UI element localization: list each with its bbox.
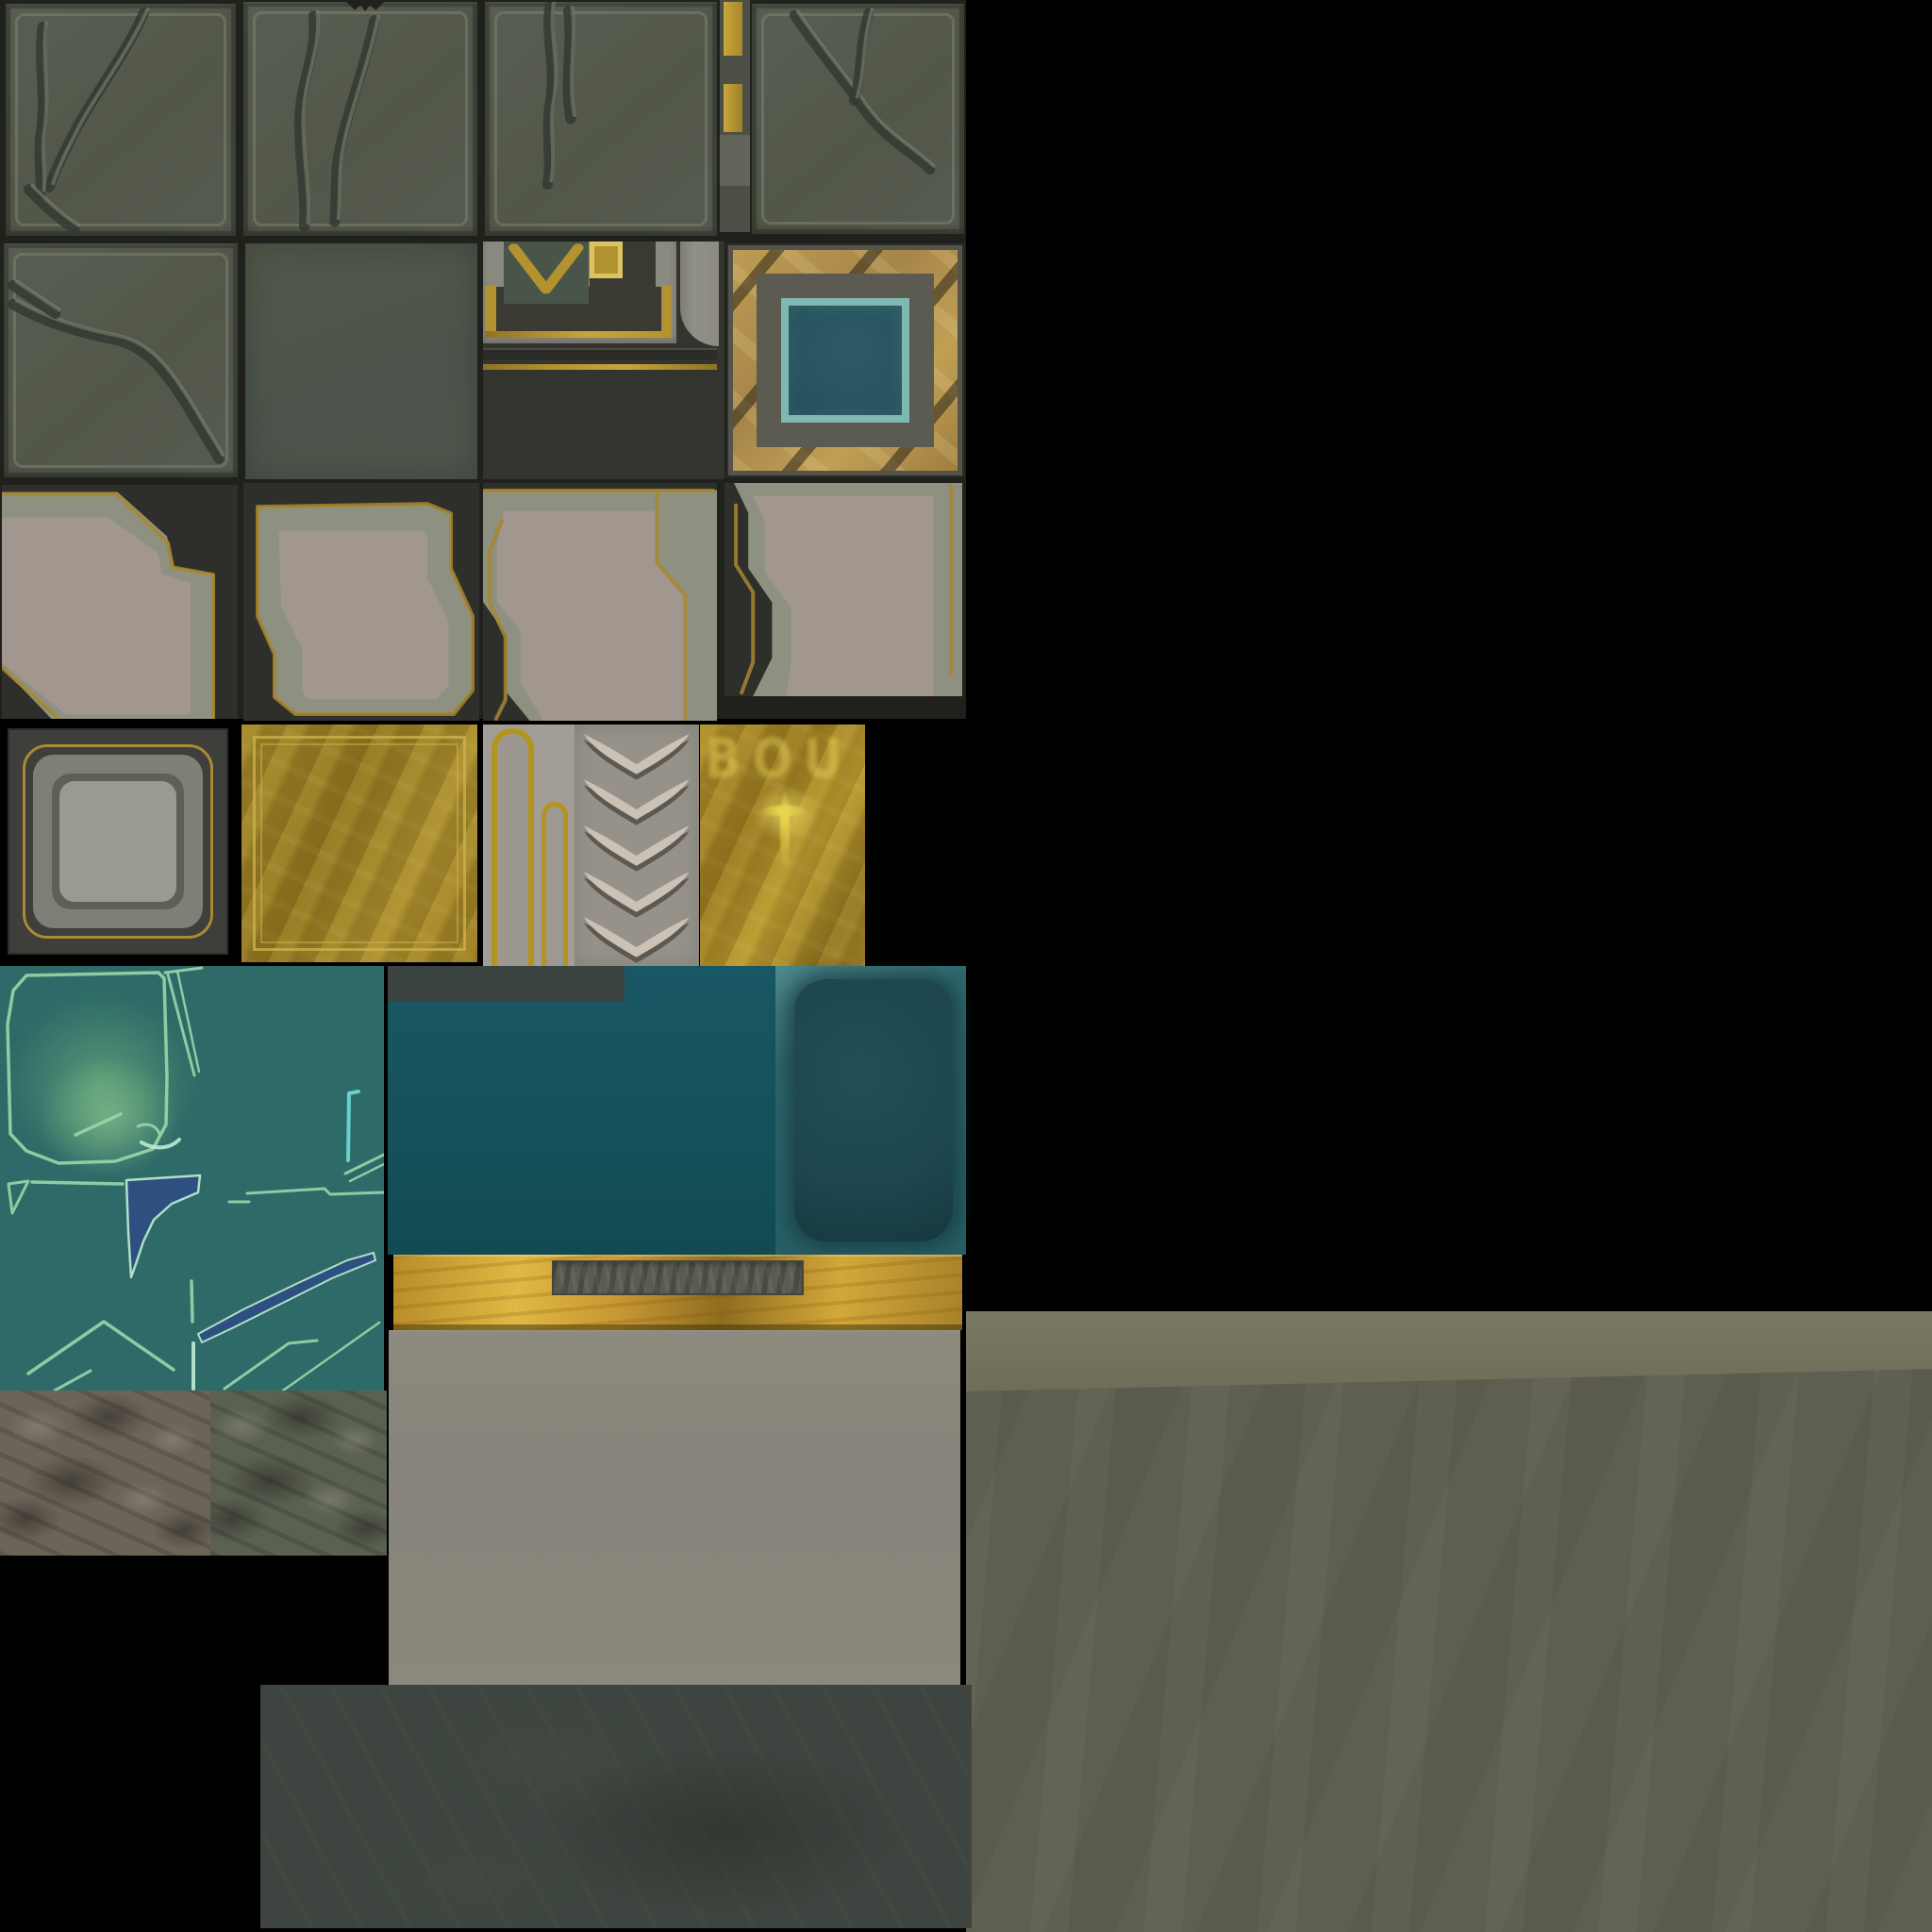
chevron-icon bbox=[579, 824, 693, 872]
gold-outline-pillar bbox=[541, 802, 568, 966]
light-gray-panel bbox=[389, 1330, 960, 1685]
chevron-icon bbox=[579, 732, 693, 780]
teal-flat-panel bbox=[388, 966, 775, 1255]
chevron-stack-decal bbox=[575, 724, 699, 966]
rock-texture-a bbox=[0, 1391, 210, 1556]
dark-slate-panel bbox=[260, 1685, 972, 1928]
mauve-panel-corner-2 bbox=[483, 483, 717, 721]
gold-channel-bottom bbox=[485, 331, 672, 339]
crack-lines bbox=[485, 2, 717, 236]
chevron-icon bbox=[579, 870, 693, 918]
v-chevron-icon bbox=[504, 241, 589, 304]
mauve-panel-ring bbox=[243, 483, 479, 721]
gold-square bbox=[590, 241, 624, 278]
gold-segment bbox=[724, 84, 742, 133]
gold-trim-lines bbox=[243, 483, 479, 721]
gold-line bbox=[483, 364, 717, 370]
chevron-icon bbox=[579, 915, 693, 963]
mauve-panel-corner-3 bbox=[724, 483, 962, 696]
gold-outline-pillars-decal bbox=[483, 724, 575, 966]
gold-trim-lines bbox=[483, 483, 717, 721]
gold-bou-tile: BOU bbox=[700, 724, 865, 966]
gold-bar-with-slot bbox=[393, 1255, 962, 1330]
dark-slot bbox=[552, 1260, 804, 1295]
gray-side-strip bbox=[680, 241, 719, 346]
gray-header-bar bbox=[388, 966, 625, 1002]
green-window bbox=[504, 241, 589, 304]
inset-border bbox=[260, 743, 458, 943]
crack-lines bbox=[4, 243, 238, 477]
rock-texture-b bbox=[210, 1391, 387, 1556]
teal-crack-map-panel bbox=[0, 966, 384, 1391]
slate-tile-3 bbox=[485, 2, 717, 236]
gold-segment bbox=[724, 2, 742, 56]
texture-atlas: BOU bbox=[0, 0, 1932, 1932]
light-center bbox=[59, 781, 176, 901]
gold-outline-pillar bbox=[491, 728, 535, 966]
gold-channel-right bbox=[662, 286, 672, 337]
mauve-panel-corner-1 bbox=[2, 485, 238, 719]
gold-trim-lines bbox=[2, 485, 238, 719]
gold-chevron-ornament-tile bbox=[483, 241, 724, 479]
soft-inner-rect bbox=[794, 979, 953, 1241]
crack-lines bbox=[243, 2, 477, 236]
gold-trim-lines bbox=[724, 483, 962, 696]
gold-frame-teal-tile bbox=[726, 243, 964, 477]
slate-tile-1 bbox=[6, 4, 236, 236]
slate-tile-2 bbox=[243, 2, 477, 236]
rounded-square-frame-tile bbox=[8, 728, 228, 955]
crack-lines bbox=[752, 4, 964, 234]
slate-tile-4 bbox=[752, 4, 964, 234]
slate-tile-plain bbox=[245, 243, 477, 479]
bou-faint-label: BOU bbox=[705, 727, 853, 791]
gray-chunk bbox=[720, 135, 750, 186]
gold-channel-left bbox=[485, 286, 496, 337]
dark-bar bbox=[483, 348, 717, 359]
teal-core bbox=[781, 298, 909, 423]
chevron-icon bbox=[579, 777, 693, 825]
crack-lines bbox=[6, 4, 236, 236]
slate-tile-cracked bbox=[4, 243, 238, 477]
map-outline-lines bbox=[0, 966, 384, 1391]
olive-floor-area bbox=[966, 1368, 1932, 1932]
teal-screen-block bbox=[775, 966, 966, 1255]
gold-plate-tile bbox=[241, 724, 477, 962]
gold-conduit-strip bbox=[720, 0, 750, 232]
star-beam-horizontal bbox=[759, 806, 808, 817]
